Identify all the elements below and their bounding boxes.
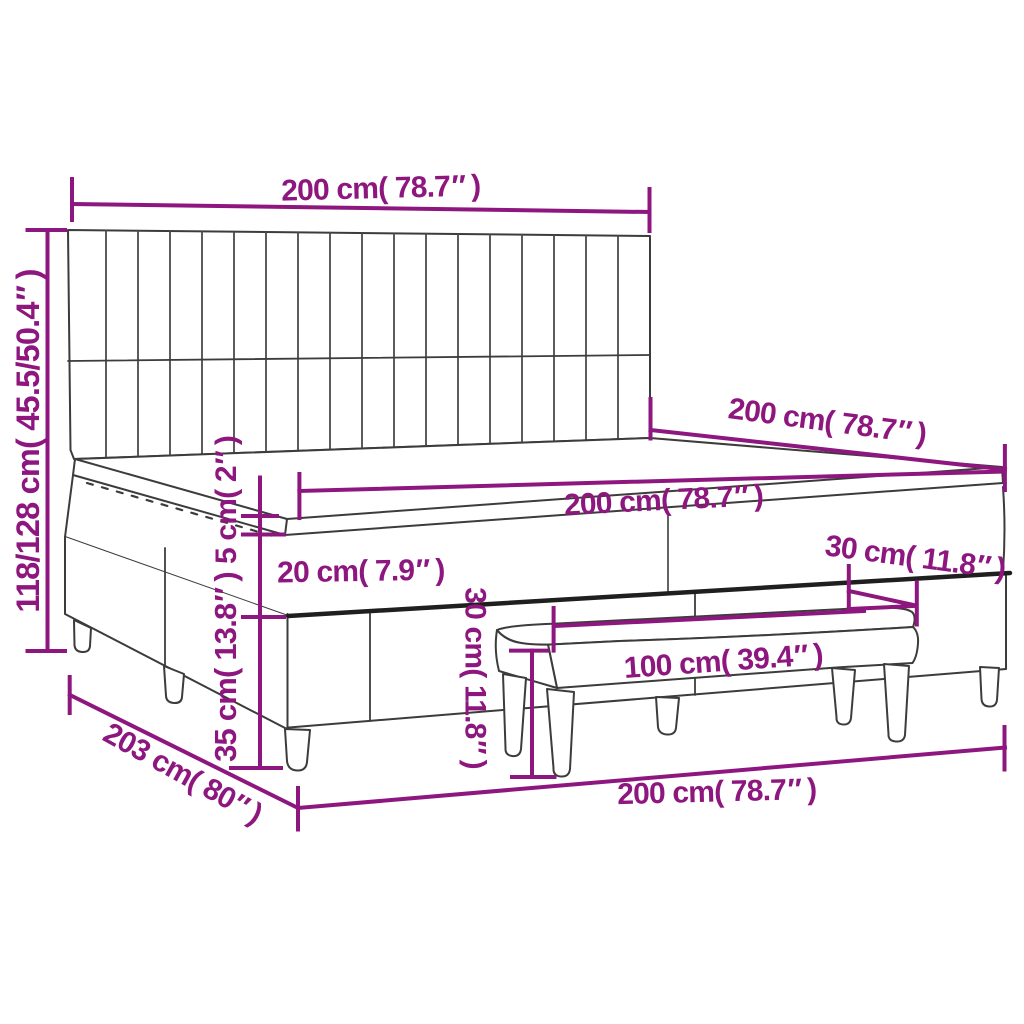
svg-text:35 cm( 13.8″ ): 35 cm( 13.8″ ) bbox=[208, 572, 243, 762]
svg-text:5 cm( 2″ ): 5 cm( 2″ ) bbox=[210, 436, 243, 564]
svg-text:200 cm( 78.7″ ): 200 cm( 78.7″ ) bbox=[617, 773, 817, 811]
svg-text:30 cm( 11.8″ ): 30 cm( 11.8″ ) bbox=[459, 587, 492, 769]
svg-text:118/128 cm( 45.5/50.4″ ): 118/128 cm( 45.5/50.4″ ) bbox=[10, 269, 46, 612]
svg-text:200 cm( 78.7″ ): 200 cm( 78.7″ ) bbox=[281, 169, 481, 207]
svg-text:20 cm( 7.9″ ): 20 cm( 7.9″ ) bbox=[277, 554, 445, 590]
